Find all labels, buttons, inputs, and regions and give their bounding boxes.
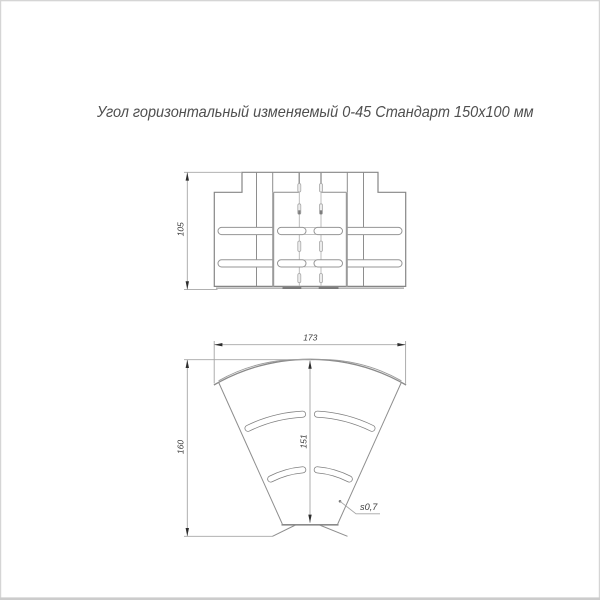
svg-text:105: 105 bbox=[175, 222, 185, 236]
svg-text:160: 160 bbox=[175, 440, 185, 454]
svg-text:s0,7: s0,7 bbox=[360, 502, 378, 512]
svg-text:151: 151 bbox=[299, 434, 309, 448]
svg-text:Угол горизонтальный изменяемый: Угол горизонтальный изменяемый 0-45 Стан… bbox=[96, 103, 534, 121]
svg-text:173: 173 bbox=[303, 333, 317, 343]
